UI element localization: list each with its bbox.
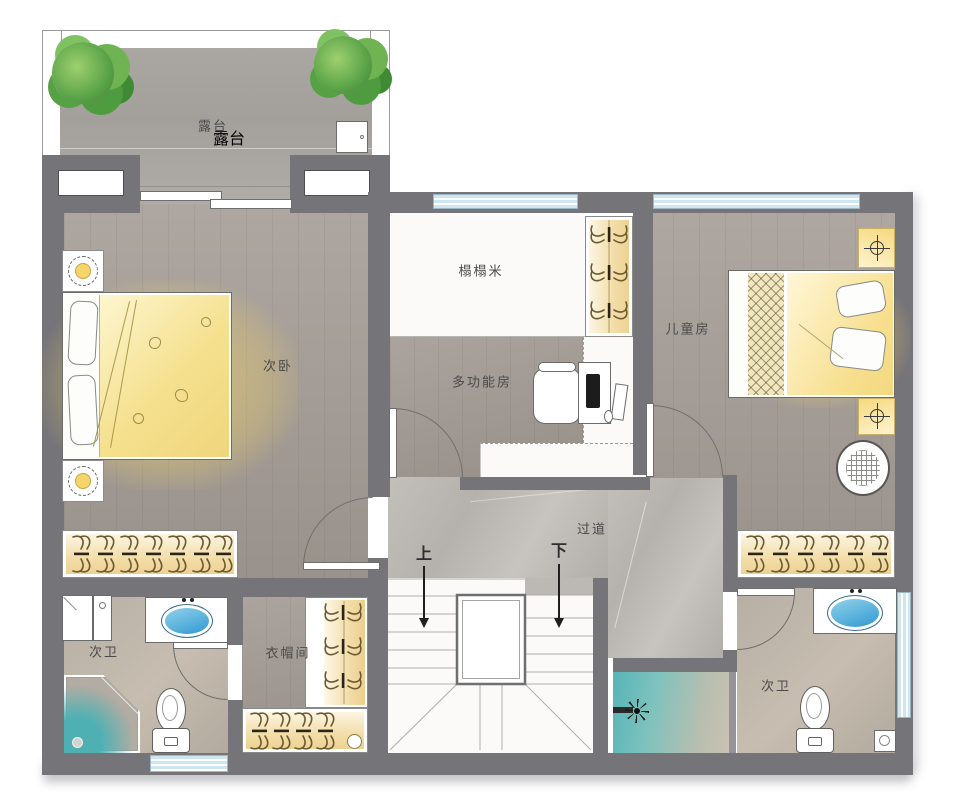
bathroom-right-door-leaf <box>737 588 795 596</box>
bedroom-label: 次卧 <box>263 356 293 375</box>
flower-icon <box>201 317 211 327</box>
terrace-sliding-door-panel <box>210 199 292 209</box>
nightstand-children <box>858 228 895 268</box>
toilet-icon <box>800 686 830 730</box>
toilet-seat <box>806 693 822 719</box>
sink-counter <box>813 588 897 634</box>
cabinet <box>62 595 93 641</box>
window-bathroom-right <box>897 592 911 718</box>
sink-icon <box>827 595 883 631</box>
toilet-tank <box>796 728 834 753</box>
washing-machine <box>93 595 112 641</box>
stairs-up-arrow-icon <box>423 566 425 624</box>
faucet-icon <box>850 589 854 593</box>
lamp-core <box>75 263 91 279</box>
faucet-icon <box>190 598 194 602</box>
hangers-icon <box>585 216 633 337</box>
wicker-weave <box>846 450 880 486</box>
terrace-label-text: 露台 <box>198 116 228 135</box>
washer-door-icon <box>99 602 106 609</box>
faucet-icon <box>182 598 186 602</box>
ceiling-light-cross-v <box>877 403 879 429</box>
nightstand <box>62 460 104 502</box>
hangers-icon <box>737 530 895 578</box>
wall-column-upper <box>723 475 737 592</box>
office-chair <box>533 368 581 424</box>
floor-drain-box <box>874 730 896 752</box>
floor-drain-icon <box>72 737 83 748</box>
floor-plan: 露台 <box>0 0 960 805</box>
mouse-icon <box>604 410 613 423</box>
bathroom-right-label: 次卫 <box>761 676 791 695</box>
flower-icon <box>175 389 188 402</box>
wall-corridor-top <box>460 477 650 490</box>
flush-button <box>808 737 822 746</box>
children-door-leaf <box>646 403 654 477</box>
nightstand <box>62 250 104 292</box>
ceiling-light-cross-v <box>877 235 879 261</box>
shower-head-dot <box>634 708 640 714</box>
hangers-icon <box>305 597 368 708</box>
monitor-icon <box>586 374 600 408</box>
stairs-down-arrow-icon <box>558 564 560 624</box>
cabinet-fold-line <box>63 597 76 610</box>
stairs-diagram <box>388 578 593 755</box>
wall-stairs-right <box>593 578 608 755</box>
toilet-tank <box>152 728 190 753</box>
wicker-chair <box>836 440 890 496</box>
plant-icon <box>52 42 114 104</box>
bathroom-left-label: 次卫 <box>89 642 119 661</box>
hangers-icon <box>62 530 238 578</box>
cloakroom-label: 衣帽间 <box>265 643 310 662</box>
multifunction-white-strip-h <box>480 443 633 477</box>
stool-icon <box>347 734 362 749</box>
plant-icon <box>314 36 372 94</box>
window-children <box>653 194 860 209</box>
floor-drain-icon <box>879 735 890 746</box>
pillow <box>67 300 98 365</box>
bed <box>62 292 232 460</box>
corridor-label: 过道 <box>577 519 607 538</box>
multifunction-label: 多功能房 <box>452 372 512 391</box>
flower-icon <box>133 413 144 424</box>
terrace-railing-right <box>370 30 390 156</box>
blanket-lattice <box>745 273 787 395</box>
nightstand-children <box>858 398 895 435</box>
corridor-floor-column <box>608 478 723 658</box>
faucet-icon <box>858 589 862 593</box>
wall-niche-right <box>304 170 370 196</box>
office-chair-back <box>538 362 576 372</box>
window-bathroom-left <box>150 755 228 772</box>
toilet-seat <box>162 695 178 721</box>
tatami-label: 榻榻米 <box>458 261 503 280</box>
children-room-label: 儿童房 <box>665 319 710 338</box>
wall-bedroom-east <box>368 213 390 497</box>
wall-bath-cloak-divider-lower <box>228 700 243 753</box>
sink-icon <box>161 604 213 638</box>
pillow <box>829 326 887 372</box>
wall-niche-left <box>58 170 124 196</box>
flush-button <box>164 737 178 746</box>
lamp-core <box>75 473 91 489</box>
bed-children <box>728 270 895 398</box>
terrace-utility-knob <box>360 135 364 139</box>
stairs-up-label: 上 <box>416 540 432 564</box>
wall-shower-top <box>613 658 737 672</box>
bedroom-door-leaf <box>303 562 380 570</box>
toilet-icon <box>156 688 186 732</box>
sink-counter <box>145 597 228 643</box>
pillow <box>67 374 99 445</box>
wall-stairs-left <box>367 578 388 755</box>
multifunction-door-leaf <box>389 408 397 478</box>
stairs-down-label: 下 <box>551 537 567 561</box>
shower-partition <box>729 672 736 753</box>
wall-bathroom-right-top <box>737 577 895 588</box>
window-tatami <box>433 194 578 209</box>
wall-bath-cloak-divider-upper <box>228 597 243 645</box>
